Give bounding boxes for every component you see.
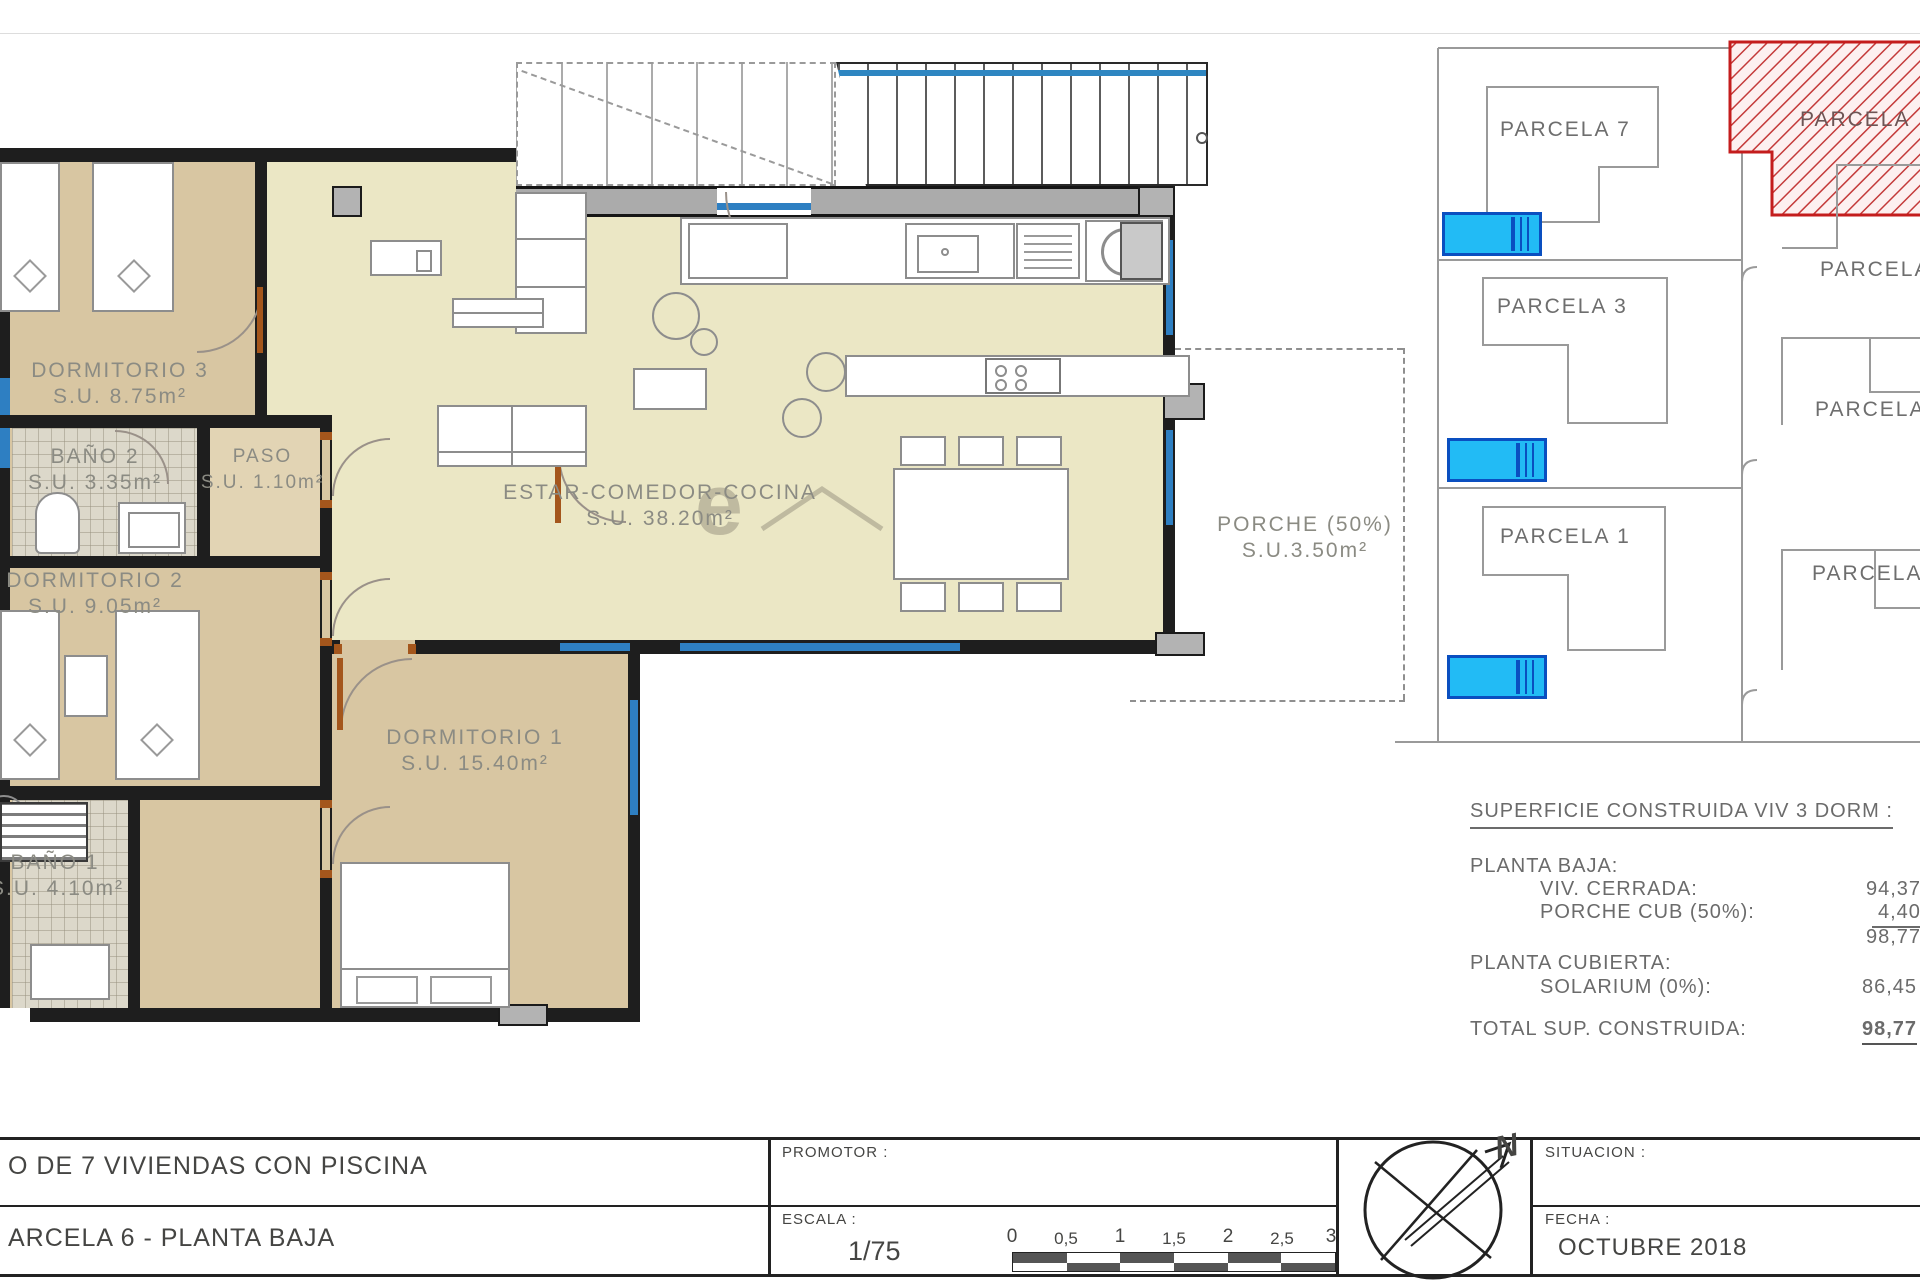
room-name: BAÑO 2 xyxy=(0,444,190,470)
wall-pier xyxy=(1155,632,1205,656)
porch-dashed-line xyxy=(1175,348,1403,350)
room-name: ESTAR-COMEDOR-COCINA xyxy=(460,480,860,506)
escala-label: ESCALA : xyxy=(782,1211,857,1228)
scale-tick: 1 xyxy=(1115,1226,1126,1248)
room-label-bano2: BAÑO 2 S.U. 3.35m² xyxy=(0,444,190,496)
pool-icon xyxy=(1442,212,1542,256)
porche-cub-value: 4,40 xyxy=(1872,901,1920,928)
wall xyxy=(128,800,140,1008)
parcela1-label: PARCELA 1 xyxy=(1500,525,1631,549)
scale-tick: 2 xyxy=(1223,1226,1234,1248)
room-area: S.U. 38.20m² xyxy=(460,506,860,532)
parcela5-label: PARCELA xyxy=(1820,258,1920,282)
porche-cub-label: PORCHE CUB (50%): xyxy=(1540,901,1755,924)
window xyxy=(560,643,630,651)
wall xyxy=(0,786,332,800)
living-floor xyxy=(267,217,332,415)
pool-icon xyxy=(1447,438,1547,482)
door-opening xyxy=(322,580,330,638)
room-label-dorm3: DORMITORIO 3 S.U. 8.75m² xyxy=(0,358,240,410)
wall xyxy=(30,1008,640,1022)
room-area: S.U. 8.75m² xyxy=(0,384,240,410)
door-leaf xyxy=(337,658,343,730)
room-area: S.U.3.50m² xyxy=(1185,538,1425,564)
chair-icon xyxy=(900,436,946,466)
planta-cubierta-label: PLANTA CUBIERTA: xyxy=(1470,952,1672,975)
door-jamb xyxy=(320,572,332,580)
scale-tick: 3 xyxy=(1326,1226,1337,1248)
side-table-icon xyxy=(370,240,442,276)
door-jamb xyxy=(334,644,342,654)
room-name: PORCHE (50%) xyxy=(1185,512,1425,538)
door-opening xyxy=(340,640,415,654)
window xyxy=(1166,430,1173,525)
titleblock-divider xyxy=(768,1137,771,1277)
bed-icon xyxy=(0,610,60,780)
room-label-dorm2: DORMITORIO 2 S.U. 9.05m² xyxy=(0,568,190,620)
pool-icon xyxy=(1447,655,1547,699)
room-name: PASO xyxy=(200,444,325,470)
room-area: S.U. 9.05m² xyxy=(0,594,190,620)
round-sink-icon xyxy=(806,352,846,392)
solarium-value: 86,45 xyxy=(1862,976,1917,999)
door-jamb xyxy=(408,644,416,654)
room-area: S.U. 3.35m² xyxy=(0,470,190,496)
titleblock-divider xyxy=(1530,1137,1533,1277)
chair-icon xyxy=(958,436,1004,466)
titleblock-border xyxy=(0,1274,1920,1277)
room-area: S.U. 15.40m² xyxy=(350,751,600,777)
room-label-paso: PASO S.U. 1.10m² xyxy=(200,444,325,496)
stool-icon xyxy=(782,398,822,438)
total-label: TOTAL SUP. CONSTRUIDA: xyxy=(1470,1018,1747,1041)
window xyxy=(630,700,638,815)
wall-pier xyxy=(332,186,362,217)
planta-baja-label: PLANTA BAJA: xyxy=(1470,855,1618,878)
stool-icon xyxy=(690,328,718,356)
titleblock-border xyxy=(0,1137,1920,1140)
solarium-label: SOLARIUM (0%): xyxy=(1540,976,1712,999)
door-opening xyxy=(322,808,330,870)
door-jamb xyxy=(320,638,332,646)
dining-table-icon xyxy=(893,468,1069,580)
parcela6-label: PARCELA xyxy=(1800,108,1910,132)
room-label-porche: PORCHE (50%) S.U.3.50m² xyxy=(1185,512,1425,564)
scale-tick: 0 xyxy=(1007,1226,1018,1248)
sheet-title: ARCELA 6 - PLANTA BAJA xyxy=(8,1224,335,1253)
room-area: S.U. 1.10m² xyxy=(200,470,325,496)
room-label-estar: ESTAR-COMEDOR-COCINA S.U. 38.20m² xyxy=(460,480,860,532)
room-name: DORMITORIO 2 xyxy=(0,568,190,594)
project-title: O DE 7 VIVIENDAS CON PISCINA xyxy=(8,1152,428,1181)
double-bed-icon xyxy=(340,862,510,1008)
parcela4-label: PARCELA 4 xyxy=(1815,398,1920,422)
tv-unit-icon xyxy=(452,298,544,328)
parcela2-label: PARCELA 2 xyxy=(1812,562,1920,586)
scale-tick: 1,5 xyxy=(1162,1229,1186,1249)
area-table-title: SUPERFICIE CONSTRUIDA VIV 3 DORM : xyxy=(1470,800,1893,829)
sofa-icon xyxy=(437,405,587,467)
hob-icon xyxy=(985,358,1061,394)
situacion-label: SITUACION : xyxy=(1545,1144,1646,1161)
promotor-label: PROMOTOR : xyxy=(782,1144,888,1161)
fecha-label: FECHA : xyxy=(1545,1211,1610,1228)
fridge-icon xyxy=(1120,222,1163,280)
escala-value: 1/75 xyxy=(848,1236,901,1267)
titleblock-divider xyxy=(1336,1137,1339,1277)
stairs xyxy=(836,62,1208,186)
titleblock-divider xyxy=(1533,1205,1920,1207)
kitchen-sink-icon xyxy=(905,223,1015,279)
chair-icon xyxy=(900,582,946,612)
door-jamb xyxy=(320,870,332,878)
wall-pier xyxy=(1138,186,1175,217)
door-jamb xyxy=(320,500,332,508)
sink-icon xyxy=(118,502,186,554)
scale-bar xyxy=(1012,1252,1336,1272)
window xyxy=(680,643,960,651)
porch-dashed-line xyxy=(1130,700,1405,702)
vanity-icon xyxy=(30,944,110,1000)
subtotal-value: 98,77 xyxy=(1866,926,1920,949)
door-jamb xyxy=(320,800,332,808)
site-plan-lines xyxy=(1390,30,1920,750)
fecha-value: OCTUBRE 2018 xyxy=(1558,1234,1747,1262)
wall xyxy=(0,556,332,568)
chair-icon xyxy=(1016,436,1062,466)
toilet-icon xyxy=(35,492,80,554)
room-area: S.U. 4.10m² xyxy=(0,876,120,902)
bed-icon xyxy=(92,162,174,312)
wall xyxy=(0,415,332,428)
door-leaf xyxy=(257,287,263,353)
room-name: DORMITORIO 1 xyxy=(350,725,600,751)
nightstand-icon xyxy=(64,655,108,717)
total-value: 98,77 xyxy=(1862,1018,1917,1045)
scale-tick: 0,5 xyxy=(1054,1229,1078,1249)
room-label-bano1: BAÑO 1 S.U. 4.10m² xyxy=(0,850,120,902)
viv-cerrada-value: 94,37 xyxy=(1866,878,1920,901)
chair-icon xyxy=(1016,582,1062,612)
titleblock-divider xyxy=(0,1205,770,1207)
kitchen-unit-icon xyxy=(688,223,788,279)
titleblock-divider xyxy=(770,1205,1336,1207)
bed-icon xyxy=(0,162,60,312)
wall xyxy=(516,186,1163,217)
scale-tick: 2,5 xyxy=(1270,1229,1294,1249)
stairs-rail-line xyxy=(838,70,1206,76)
drainer-icon xyxy=(1016,223,1080,279)
room-name: BAÑO 1 xyxy=(0,850,120,876)
parcela3-label: PARCELA 3 xyxy=(1497,295,1628,319)
door-jamb xyxy=(320,432,332,440)
drawing-sheet: e DORMITORIO 3 S.U. 8.75m² BAÑO 2 S.U. 3… xyxy=(0,0,1920,1280)
viv-cerrada-label: VIV. CERRADA: xyxy=(1540,878,1698,901)
room-label-dorm1: DORMITORIO 1 S.U. 15.40m² xyxy=(350,725,600,777)
bed-icon xyxy=(115,610,200,780)
room-name: DORMITORIO 3 xyxy=(0,358,240,384)
chair-icon xyxy=(958,582,1004,612)
stairs-post xyxy=(1196,132,1208,144)
armchair-icon xyxy=(633,368,707,410)
parcela7-label: PARCELA 7 xyxy=(1500,118,1631,142)
living-floor xyxy=(267,162,516,217)
